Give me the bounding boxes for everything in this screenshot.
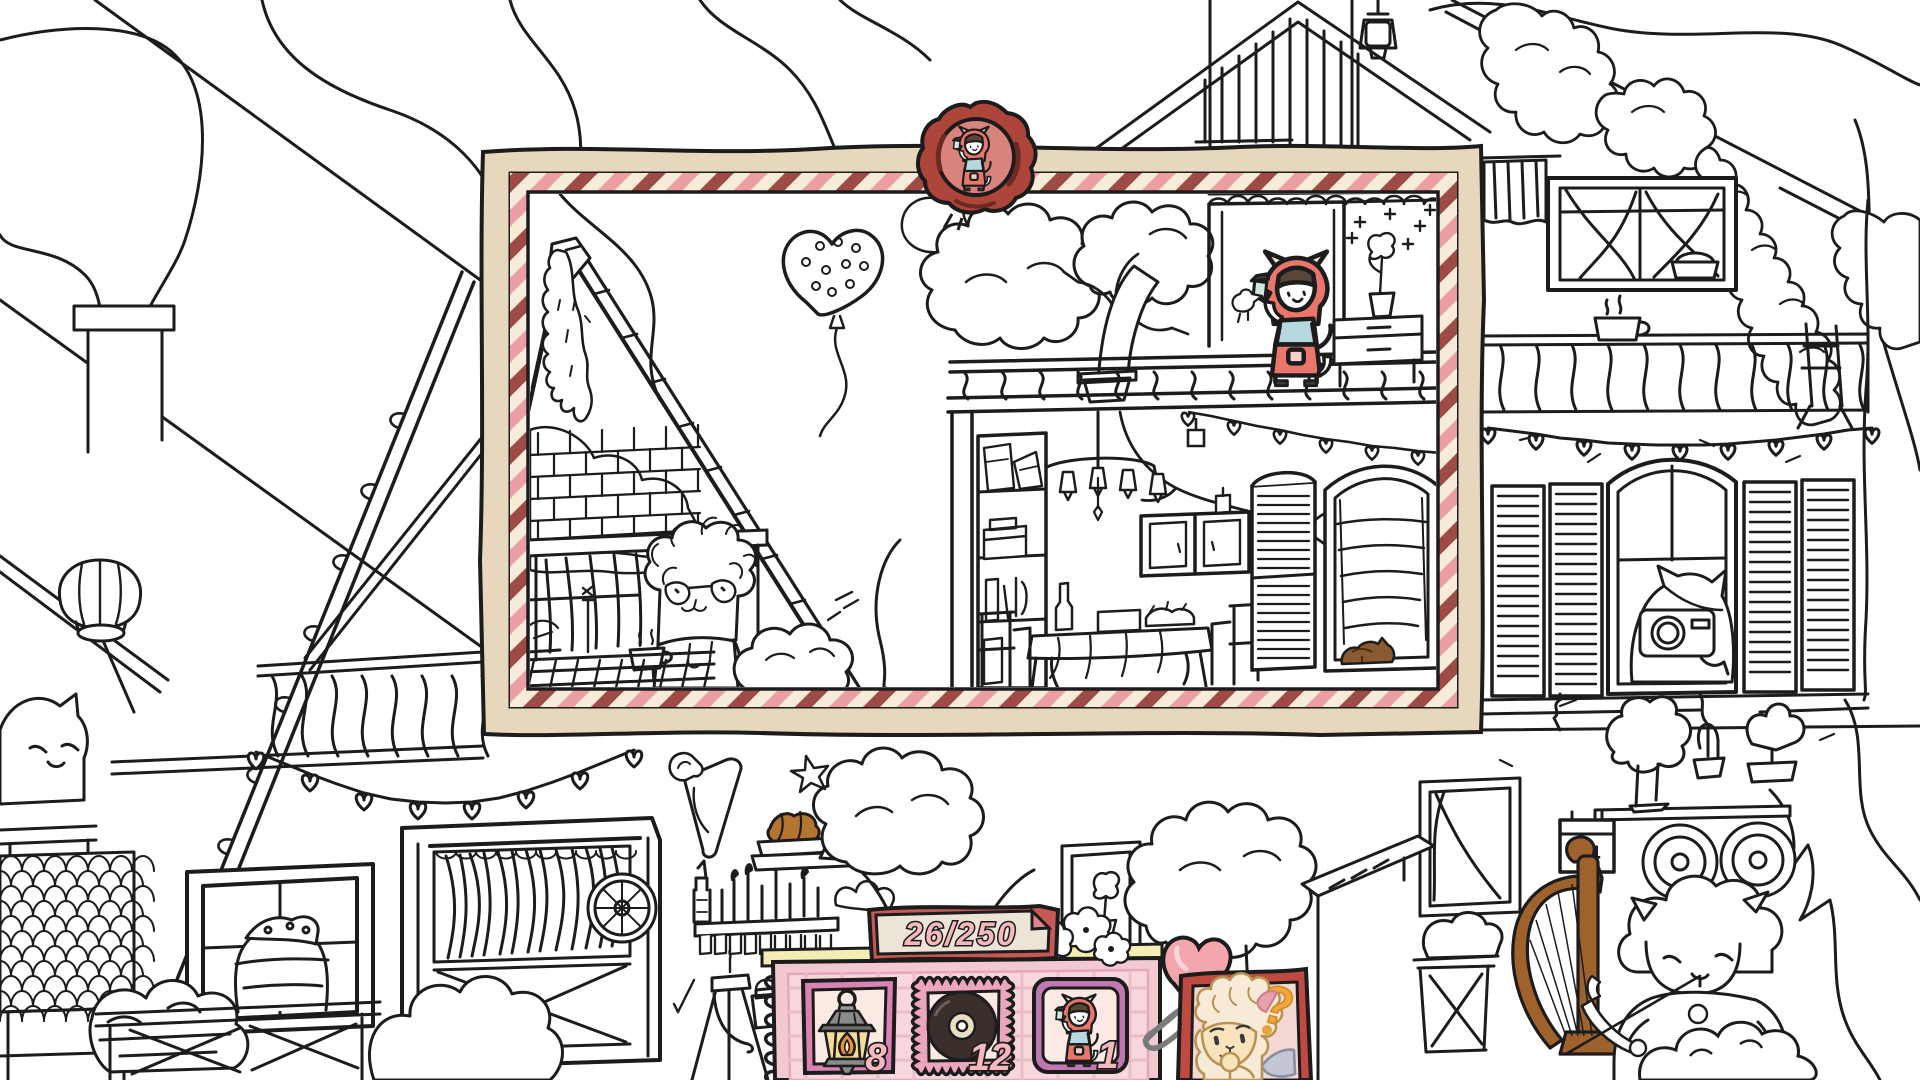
svg-text:1: 1 <box>1097 1035 1118 1077</box>
svg-text:8: 8 <box>865 1037 887 1079</box>
svg-text:26/250: 26/250 <box>904 916 1018 952</box>
svg-text:12: 12 <box>969 1037 1011 1079</box>
